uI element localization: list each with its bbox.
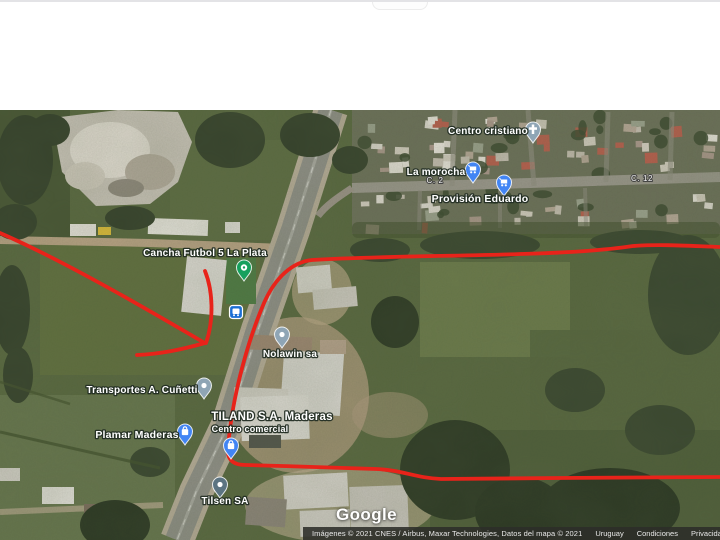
street-label-street-c12: C. 12 [631,174,653,183]
cart-icon [470,171,472,173]
poi-label-tiland-maderas[interactable]: TILAND S.A. Maderas [211,411,332,423]
poi-dot-icon [201,383,206,388]
bus-stop-pin[interactable] [230,306,243,319]
screenshot-root: Centro cristianoLa morochaProvisión Edua… [0,0,720,540]
attribution-link-condiciones[interactable]: Condiciones [637,529,678,538]
bus-wheel [237,314,239,316]
top-whitespace [0,0,720,110]
bus-glyph [233,309,240,315]
cart-icon [505,184,507,186]
street-label-street-c2: C. 2 [426,176,443,185]
satellite-terrain: Centro cristianoLa morochaProvisión Edua… [0,110,720,540]
cart-icon [470,167,476,171]
google-logo[interactable]: Google [336,505,397,525]
poi-label-nolawin[interactable]: Nolawin sa [263,349,317,360]
poi-label-centro-cristiano[interactable]: Centro cristiano [448,126,528,137]
poi-dot-icon [217,482,222,487]
cart-icon [474,171,476,173]
attribution-imagery: Imágenes © 2021 CNES / Airbus, Maxar Tec… [312,529,582,538]
cross-icon [529,127,537,130]
cart-icon [501,184,503,186]
search-bar-remnant [372,2,428,10]
shopping-bag-icon [182,429,188,435]
bus-wheel [233,314,235,316]
attribution-bar: Imágenes © 2021 CNES / Airbus, Maxar Tec… [303,527,720,540]
shopping-bag-icon [228,443,234,449]
poi-label-transportes-cunetti[interactable]: Transportes A. Cuñetti [86,385,197,396]
sports-icon [243,266,245,268]
map-viewport[interactable]: Centro cristianoLa morochaProvisión Edua… [0,110,720,540]
attribution-link-uruguay[interactable]: Uruguay [595,529,623,538]
satellite-map: Centro cristianoLa morochaProvisión Edua… [0,110,720,540]
poi-dot-icon [279,332,284,337]
poi-label-tilsen[interactable]: Tilsen SA [201,496,248,507]
cart-icon [501,180,507,184]
poi-label-cancha-futbol[interactable]: Cancha Futbol 5 La Plata [143,248,267,259]
poi-label-tiland-centro-comercial[interactable]: Centro comercial [212,424,289,434]
attribution-link-privacidad[interactable]: Privacidad [691,529,720,538]
poi-label-plamar-maderas[interactable]: Plamar Maderas [95,429,178,441]
poi-label-provision-eduardo[interactable]: Provisión Eduardo [432,193,529,205]
